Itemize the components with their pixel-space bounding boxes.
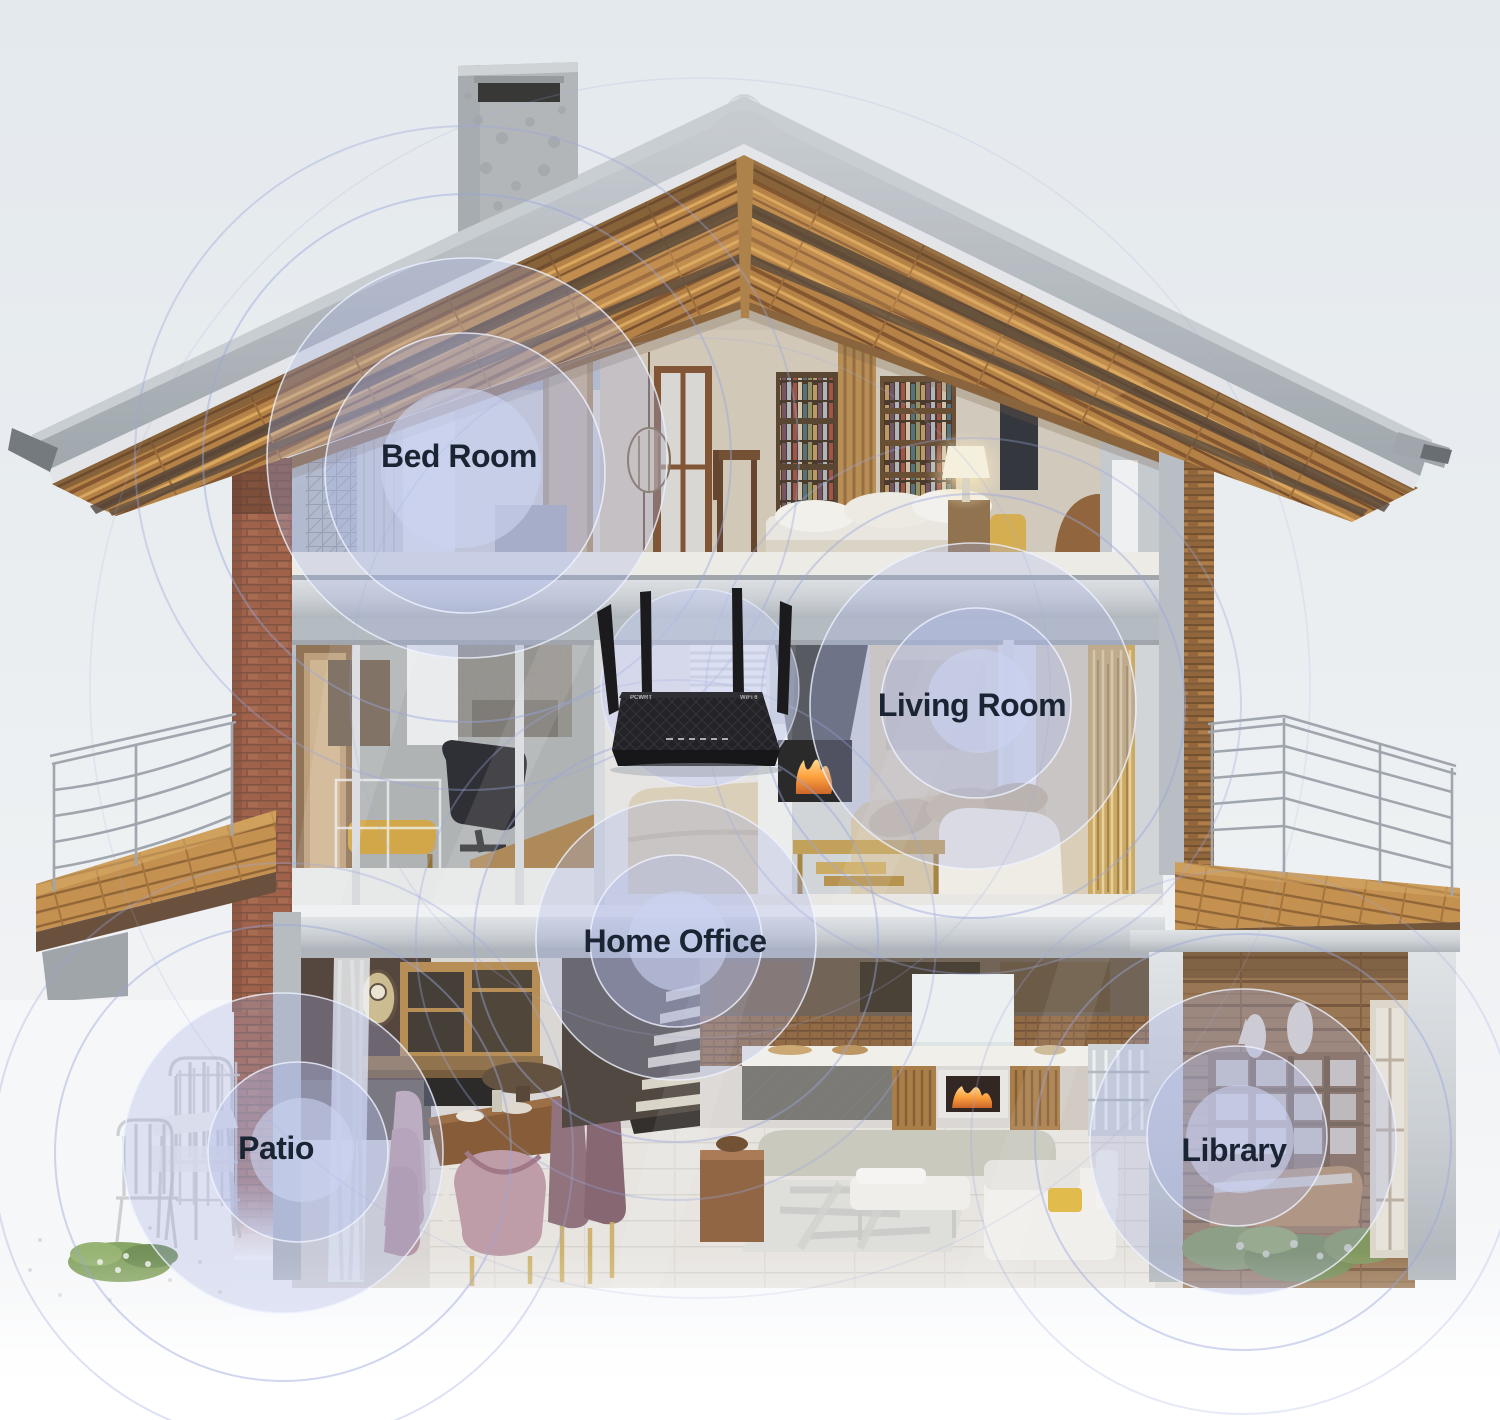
svg-text:Home Office: Home Office (584, 923, 767, 959)
svg-text:Patio: Patio (238, 1130, 314, 1166)
svg-text:Library: Library (1182, 1132, 1288, 1168)
svg-text:PCWRT: PCWRT (630, 695, 652, 701)
svg-text:WiFi 6: WiFi 6 (740, 695, 758, 701)
svg-text:Living Room: Living Room (878, 687, 1066, 723)
svg-text:Bed Room: Bed Room (381, 438, 537, 474)
